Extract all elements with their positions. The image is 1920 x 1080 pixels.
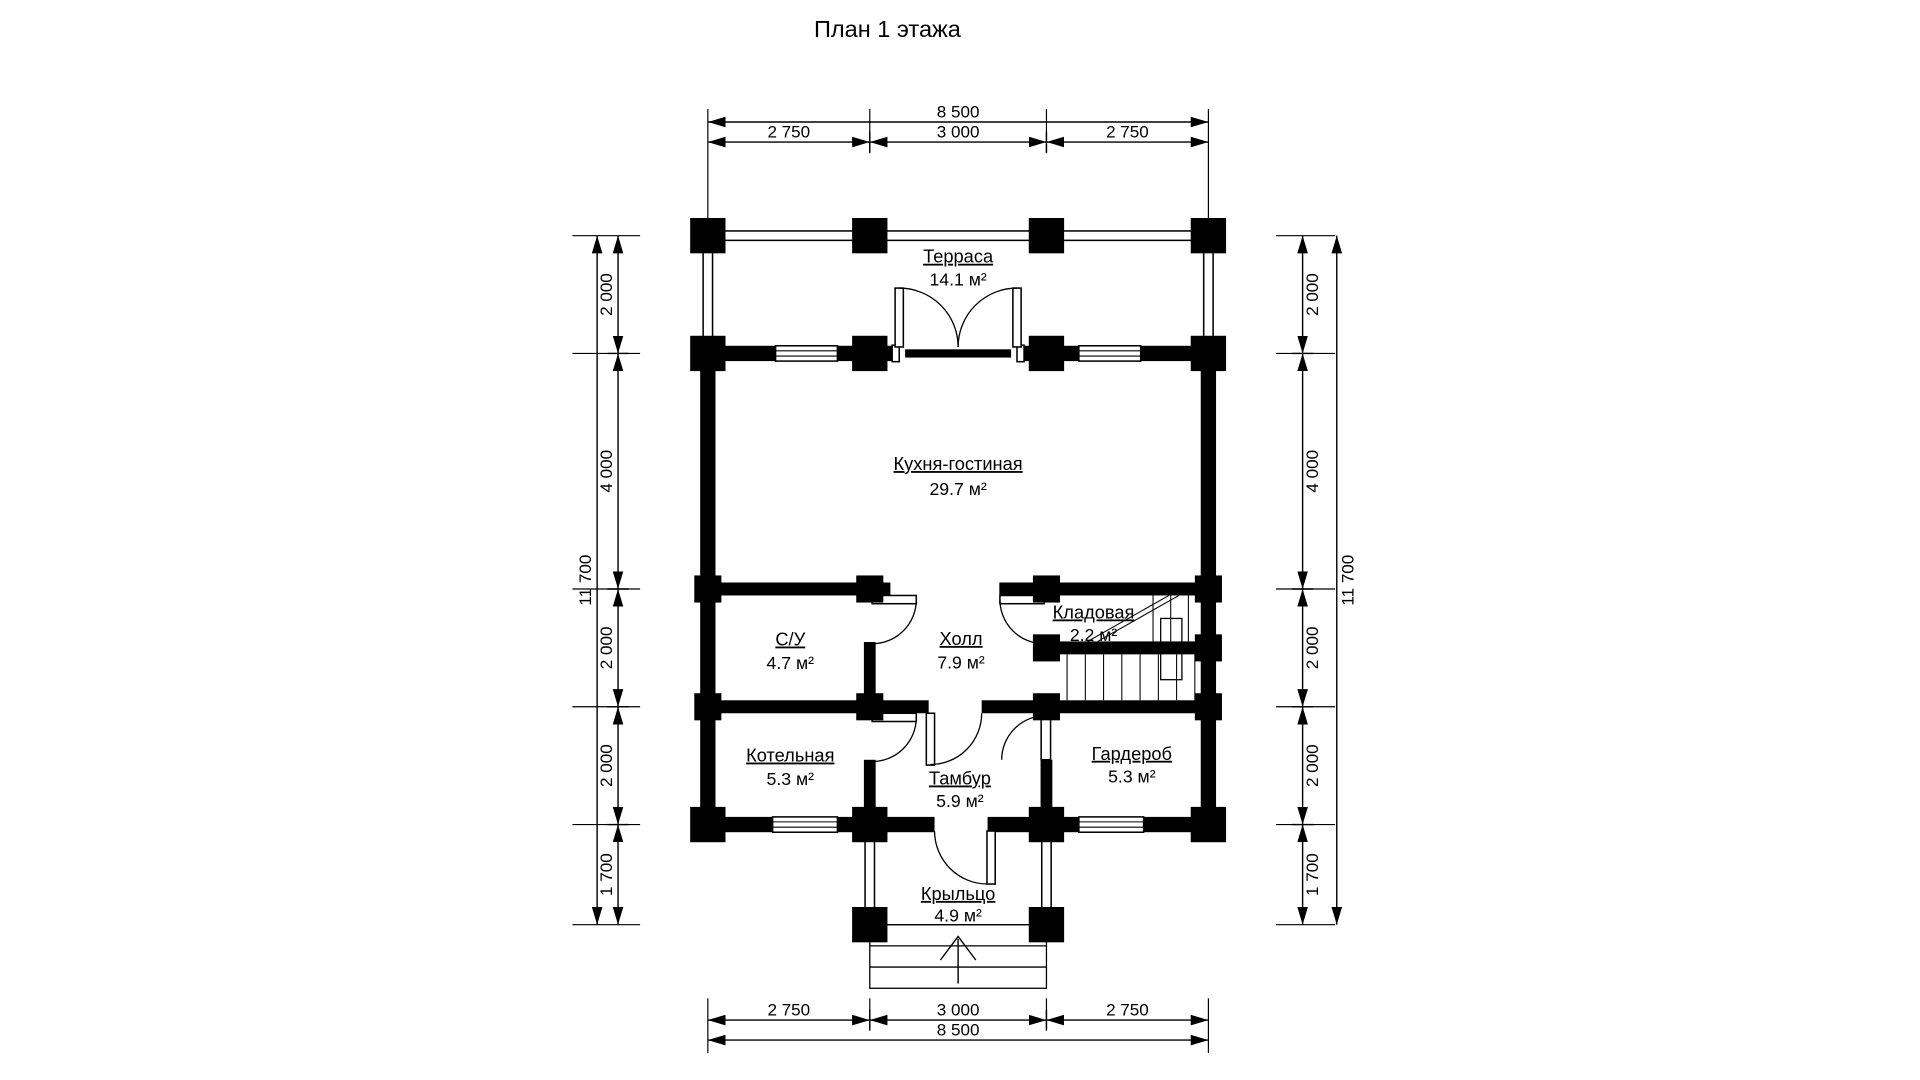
room-label-boiler: Котельная 5.3 м² — [746, 745, 834, 790]
svg-text:Гардероб: Гардероб — [1092, 743, 1172, 764]
boiler-door — [872, 713, 916, 761]
dimensions-left: 11 700 2 000 4 000 2 000 2 000 1 700 — [572, 236, 640, 925]
dim-top-seg-3: 2 750 — [1106, 122, 1149, 141]
window-wardrobe — [1079, 817, 1144, 832]
svg-text:5.9 м²: 5.9 м² — [936, 791, 984, 811]
dim-right-seg-4: 2 000 — [1303, 744, 1322, 787]
svg-text:2.2 м²: 2.2 м² — [1070, 625, 1118, 645]
dim-left-overall: 11 700 — [576, 555, 595, 606]
svg-text:14.1 м²: 14.1 м² — [929, 270, 986, 290]
dim-right-seg-2: 4 000 — [1303, 450, 1322, 493]
dim-top-seg-2: 3 000 — [937, 122, 980, 141]
room-label-vestibule: Тамбур 5.9 м² — [929, 768, 991, 811]
svg-text:Холл: Холл — [940, 628, 983, 649]
svg-text:4.7 м²: 4.7 м² — [767, 653, 815, 673]
svg-text:Кладовая: Кладовая — [1053, 601, 1135, 622]
dim-bottom-seg-3: 2 750 — [1106, 1000, 1149, 1019]
svg-text:Кухня-гостиная: Кухня-гостиная — [894, 453, 1023, 474]
entrance-opening — [935, 815, 988, 834]
entry-arrow — [940, 936, 975, 983]
dim-left-seg-5: 1 700 — [597, 853, 616, 896]
svg-text:5.3 м²: 5.3 м² — [1108, 767, 1156, 787]
porch-steps — [870, 925, 1047, 989]
dim-top-overall: 8 500 — [937, 102, 980, 121]
wc-door — [872, 595, 916, 643]
window-kitchen-left — [776, 346, 838, 361]
dim-right-seg-3: 2 000 — [1303, 627, 1322, 670]
dim-left-seg-4: 2 000 — [597, 744, 616, 787]
terrace-double-door — [892, 288, 1024, 362]
window-kitchen-right — [1079, 346, 1141, 361]
hall-vestibule-door — [926, 713, 981, 765]
window-boiler — [773, 817, 838, 832]
dim-bottom-overall: 8 500 — [937, 1020, 980, 1039]
dimensions-bottom: 2 750 3 000 2 750 8 500 — [708, 998, 1209, 1053]
svg-text:С/У: С/У — [775, 629, 805, 650]
dim-bottom-seg-1: 2 750 — [767, 1000, 810, 1019]
room-label-storage: Кладовая 2.2 м² — [1053, 601, 1135, 644]
svg-text:7.9 м²: 7.9 м² — [937, 652, 985, 672]
svg-text:4.9 м²: 4.9 м² — [934, 906, 982, 926]
room-label-wc: С/У 4.7 м² — [767, 629, 815, 674]
svg-text:Терраса: Терраса — [923, 246, 994, 267]
room-label-porch: Крыльцо 4.9 м² — [921, 883, 995, 926]
dim-bottom-seg-2: 3 000 — [937, 1000, 980, 1019]
dim-left-seg-2: 4 000 — [597, 450, 616, 493]
svg-text:Крыльцо: Крыльцо — [921, 883, 995, 904]
dimensions-right: 2 000 4 000 2 000 2 000 1 700 11 700 — [1276, 236, 1357, 925]
floor-plan-sheet: План 1 этажа — [0, 0, 1920, 1080]
svg-text:Тамбур: Тамбур — [929, 768, 991, 789]
svg-text:Котельная: Котельная — [746, 745, 834, 766]
entrance-door — [935, 831, 996, 884]
room-label-kitchen-living: Кухня-гостиная 29.7 м² — [894, 453, 1023, 499]
dim-left-seg-1: 2 000 — [597, 273, 616, 316]
dim-left-seg-3: 2 000 — [597, 627, 616, 670]
dim-top-seg-1: 2 750 — [767, 122, 810, 141]
floor-plan-drawing: План 1 этажа — [540, 0, 1380, 1080]
dim-right-seg-5: 1 700 — [1303, 853, 1322, 896]
wardrobe-door — [1002, 716, 1051, 760]
drawing-title: План 1 этажа — [814, 16, 962, 42]
dim-right-seg-1: 2 000 — [1303, 273, 1322, 316]
room-label-wardrobe: Гардероб 5.3 м² — [1092, 743, 1172, 787]
svg-text:29.7 м²: 29.7 м² — [929, 479, 986, 499]
dim-right-overall: 11 700 — [1338, 555, 1357, 606]
dimensions-top: 8 500 2 750 3 000 2 750 — [708, 102, 1209, 221]
room-label-terrace: Терраса 14.1 м² — [923, 246, 994, 290]
svg-text:5.3 м²: 5.3 м² — [767, 769, 815, 789]
room-label-hall: Холл 7.9 м² — [937, 628, 985, 673]
